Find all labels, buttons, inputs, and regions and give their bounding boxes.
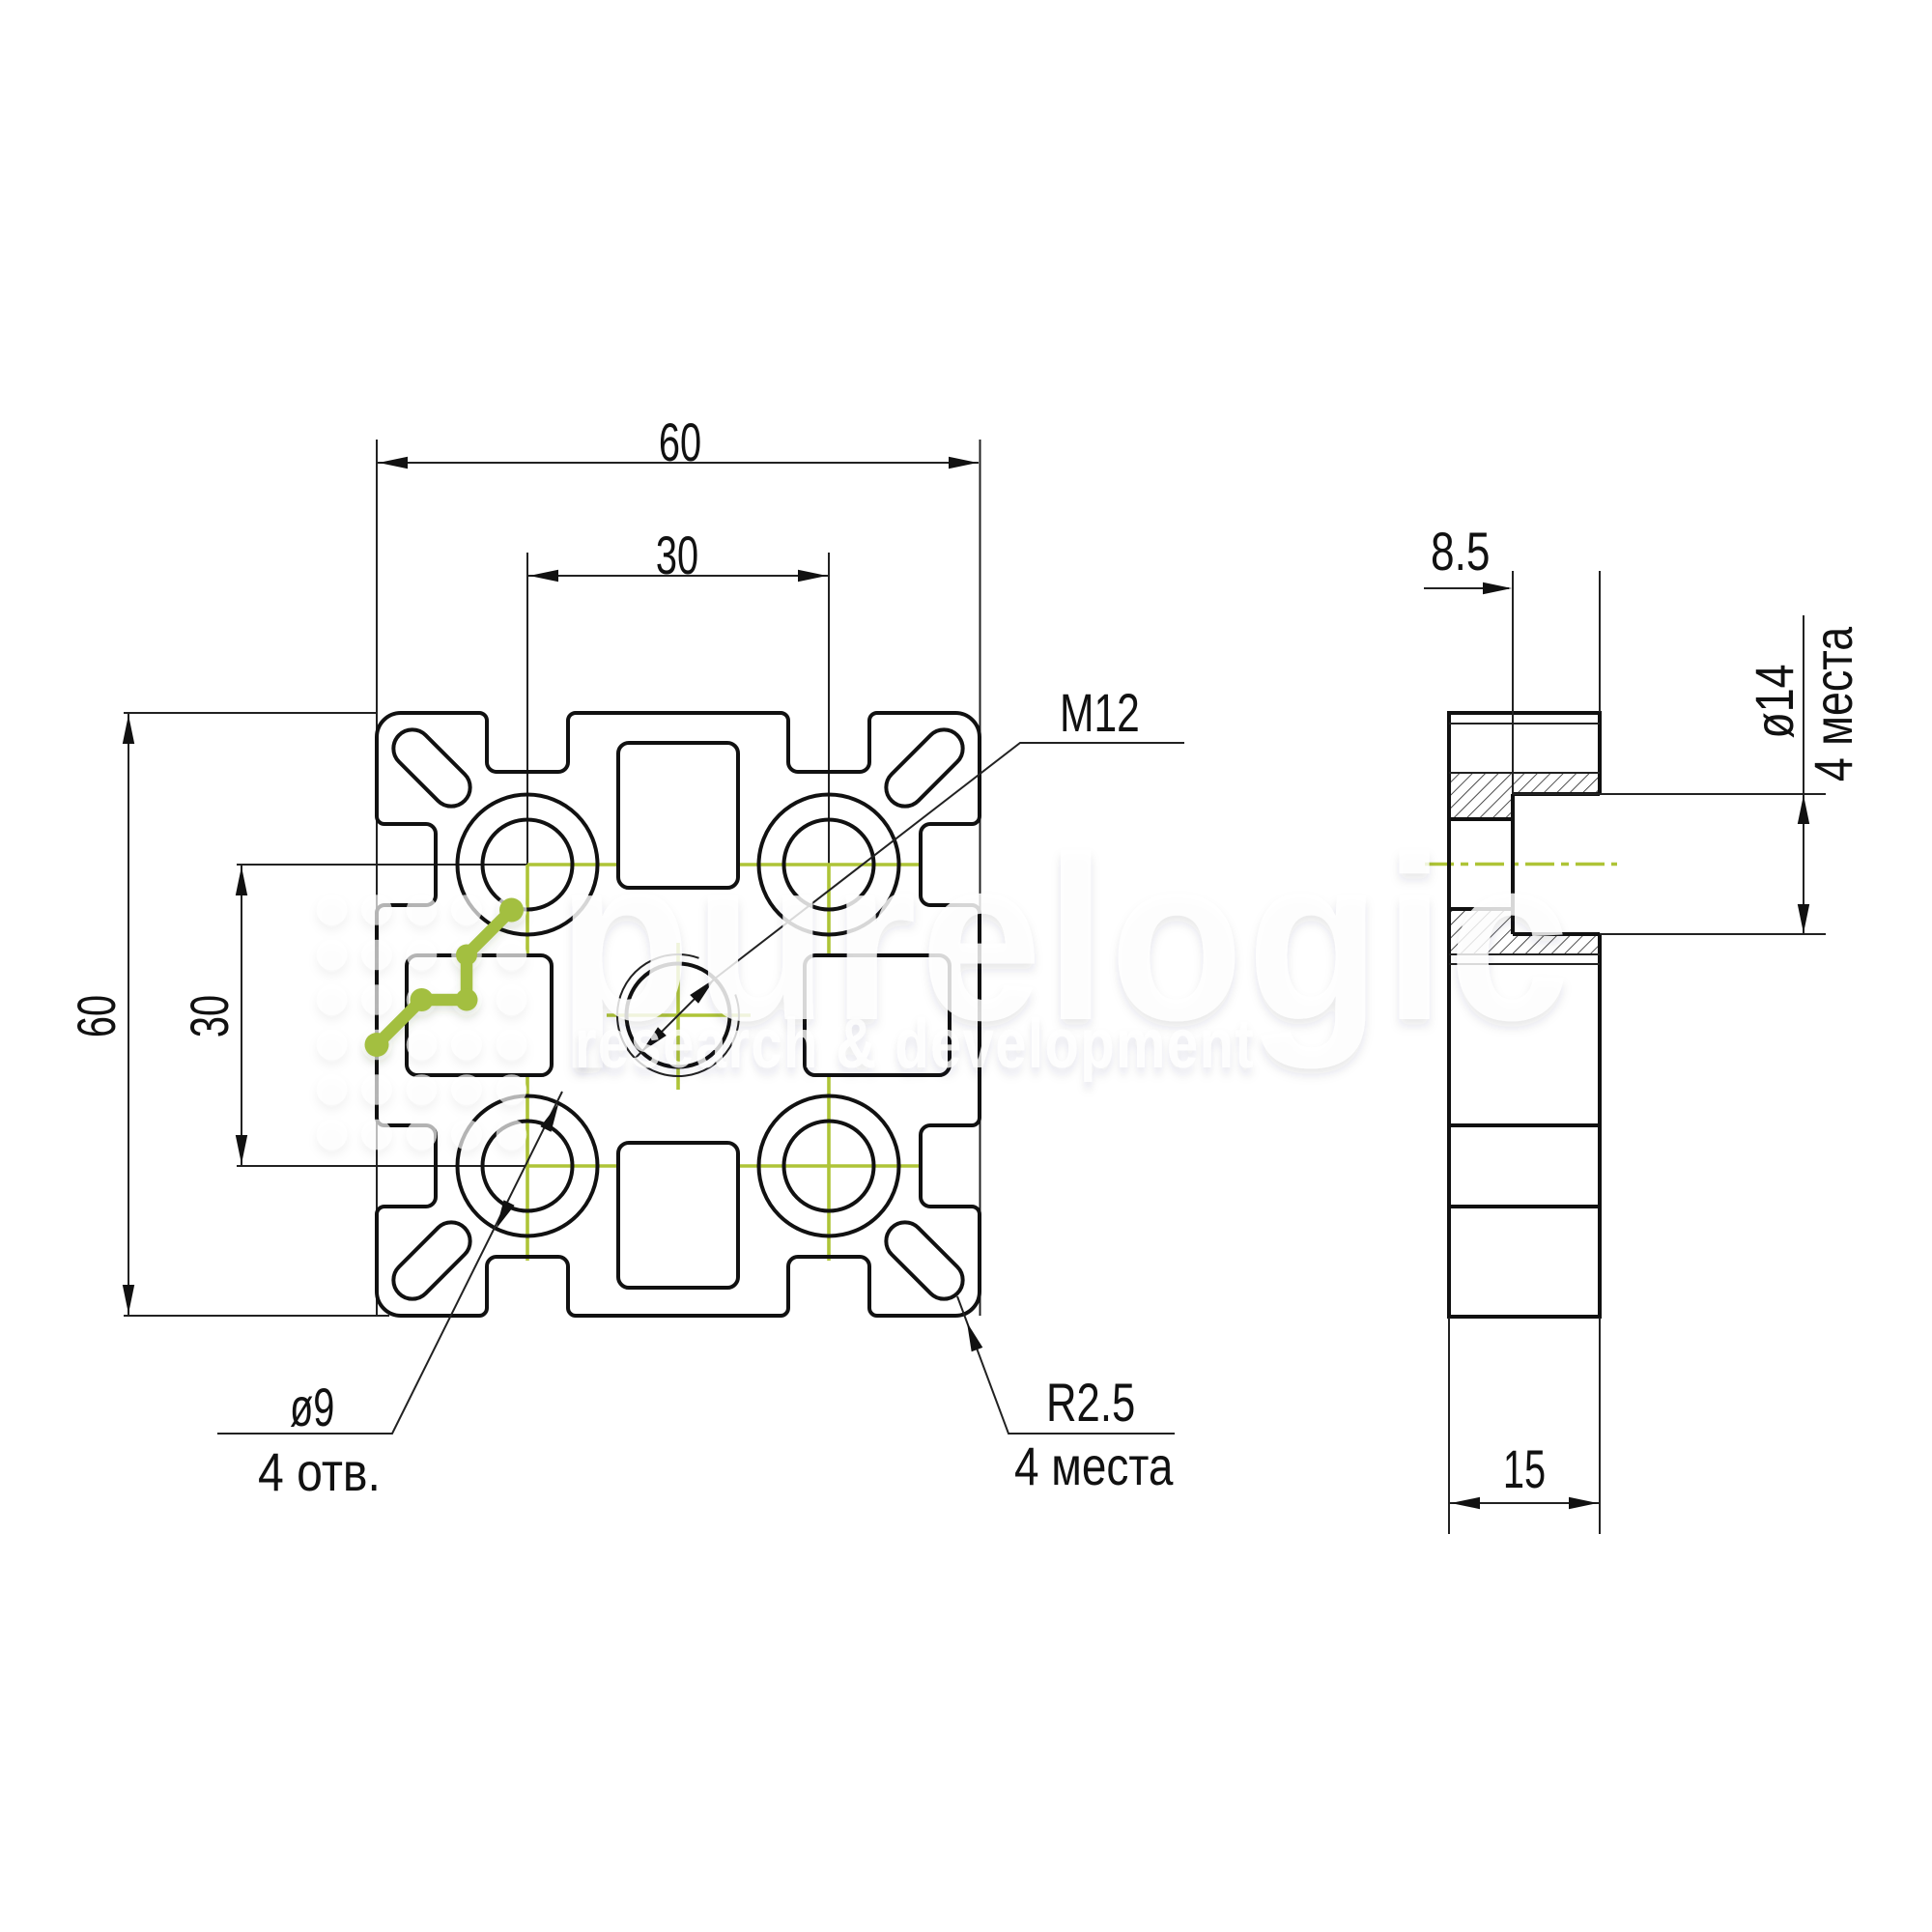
svg-text:60: 60 — [67, 995, 127, 1037]
svg-text:ø14: ø14 — [1744, 664, 1804, 738]
svg-text:4 места: 4 места — [1014, 1436, 1174, 1496]
svg-text:30: 30 — [180, 995, 240, 1037]
svg-text:R2.5: R2.5 — [1046, 1373, 1135, 1433]
svg-text:research & development: research & development — [575, 1005, 1255, 1083]
svg-text:4 места: 4 места — [1803, 626, 1863, 781]
svg-text:M12: M12 — [1060, 682, 1140, 743]
svg-text:30: 30 — [656, 526, 698, 585]
svg-text:ø9: ø9 — [290, 1378, 334, 1437]
svg-text:60: 60 — [659, 412, 701, 472]
svg-text:4 отв.: 4 отв. — [258, 1443, 381, 1503]
svg-text:15: 15 — [1503, 1439, 1546, 1499]
svg-text:8.5: 8.5 — [1431, 521, 1490, 582]
